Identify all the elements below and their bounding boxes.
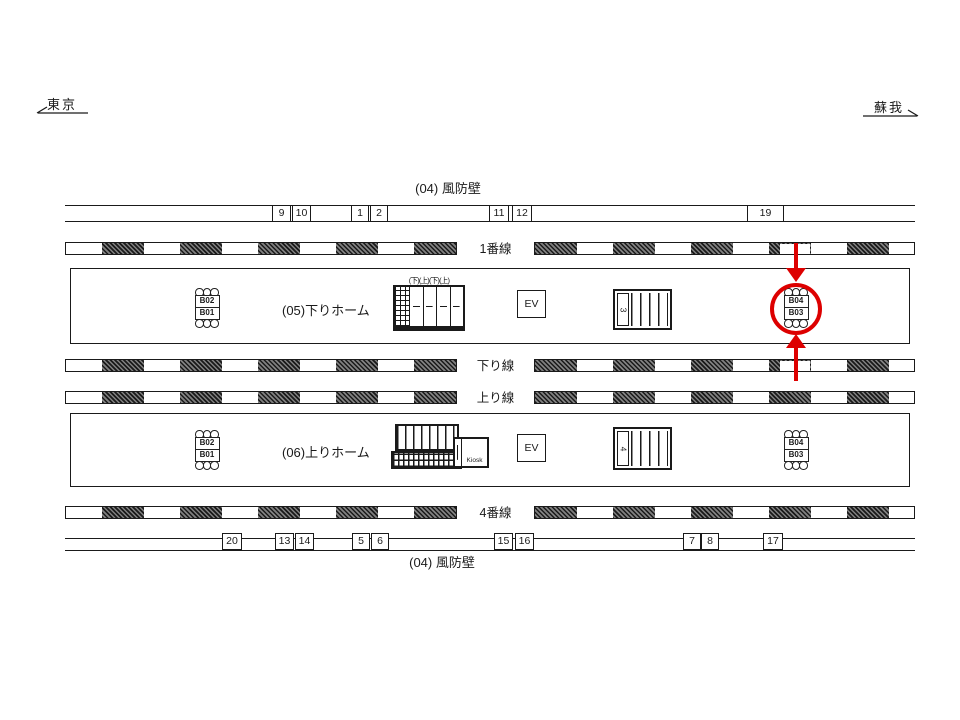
ad-board-12: 12 — [512, 205, 532, 222]
staircase-lower-top — [395, 424, 459, 451]
ad-board-6: 6 — [371, 533, 389, 550]
elevator-lower: EV — [517, 434, 546, 462]
kiosk-label: Kiosk — [462, 439, 487, 466]
right-arrow-icon — [862, 108, 920, 122]
bench-lower-left: B02 B01 — [192, 430, 222, 469]
stair-number-lane: 3 — [617, 293, 629, 326]
up-line-bar-left — [65, 391, 457, 404]
escalator-lane-icon — [424, 287, 438, 326]
up-line-label: 上り線 — [457, 391, 534, 405]
board-b01: B01 — [195, 307, 220, 320]
ad-board-5: 5 — [352, 533, 370, 550]
ad-board-16: 16 — [515, 533, 534, 550]
stair-steps-icon — [631, 293, 668, 326]
bench-upper-left: B02 B01 — [192, 288, 222, 327]
stair-number-lane: 4 — [617, 431, 629, 466]
ad-board-17: 17 — [763, 533, 783, 550]
down-line-label: 下り線 — [457, 359, 534, 373]
board-b01: B01 — [195, 449, 220, 462]
bench-dots-icon — [192, 319, 222, 327]
ad-board-13: 13 — [275, 533, 294, 550]
stair-steps-icon — [631, 431, 668, 466]
track1-bar-right — [534, 242, 915, 255]
down-line-bar-left — [65, 359, 457, 372]
track4-bar-left — [65, 506, 457, 519]
track1-bar-left — [65, 242, 457, 255]
ad-board-7: 7 — [683, 533, 701, 550]
escalator-body — [393, 285, 465, 331]
bench-lower-right: B04 B03 — [781, 430, 811, 469]
highlight-circle — [770, 283, 822, 335]
staircase-lower: 4 — [613, 427, 672, 470]
track4-label: 4番線 — [457, 506, 534, 520]
escalator-lane-icon — [410, 287, 424, 326]
board-b03: B03 — [784, 449, 809, 462]
windbreak-wall-bottom — [65, 538, 915, 551]
staircase-upper: 3 — [613, 289, 672, 330]
elevator-upper: EV — [517, 290, 546, 318]
ad-board-2: 2 — [370, 205, 388, 222]
highlight-arrow-down-head — [786, 268, 806, 282]
ad-board-8: 8 — [701, 533, 719, 550]
upper-platform-label: (05)下りホーム — [282, 300, 370, 319]
bench-dots-icon — [192, 461, 222, 469]
escalator-direction-labels: (下)(上)(下)(上) — [393, 276, 465, 285]
ad-board-20: 20 — [222, 533, 242, 550]
ad-board-15: 15 — [494, 533, 513, 550]
lower-platform-label: (06)上りホーム — [282, 442, 370, 461]
stair-block-icon — [395, 287, 410, 326]
stair-number: 4 — [618, 446, 628, 451]
upper-escalator-complex: (下)(上)(下)(上) — [393, 276, 465, 331]
kiosk: Kiosk — [453, 437, 489, 468]
escalator-lane-icon — [437, 287, 451, 326]
kiosk-strip-icon — [455, 439, 462, 466]
escalator-lower-band — [391, 451, 462, 469]
escalator-lane-icon — [451, 287, 464, 326]
stair-number: 3 — [618, 307, 628, 312]
ad-board-11: 11 — [489, 205, 509, 222]
track4-bar-right — [534, 506, 915, 519]
highlight-arrow-up-shaft — [794, 347, 798, 381]
ad-board-1: 1 — [351, 205, 369, 222]
highlight-arrow-down-shaft — [794, 243, 798, 269]
up-line-bar-right — [534, 391, 915, 404]
windbreak-wall-bottom-label: (04) 風防壁 — [377, 552, 507, 571]
station-platform-diagram: 東京 蘇我 (04) 風防壁 9 10 1 2 11 12 19 1番線 (05… — [0, 0, 960, 720]
ad-board-19: 19 — [747, 205, 784, 222]
ad-board-14: 14 — [295, 533, 314, 550]
left-arrow-icon — [35, 105, 89, 119]
bench-dots-icon — [781, 461, 811, 469]
down-line-bar-right — [534, 359, 915, 372]
ad-board-9: 9 — [272, 205, 291, 222]
track1-label: 1番線 — [457, 242, 534, 256]
ad-board-10: 10 — [292, 205, 311, 222]
highlight-arrow-up-head — [786, 334, 806, 348]
windbreak-wall-top-label: (04) 風防壁 — [383, 178, 513, 197]
